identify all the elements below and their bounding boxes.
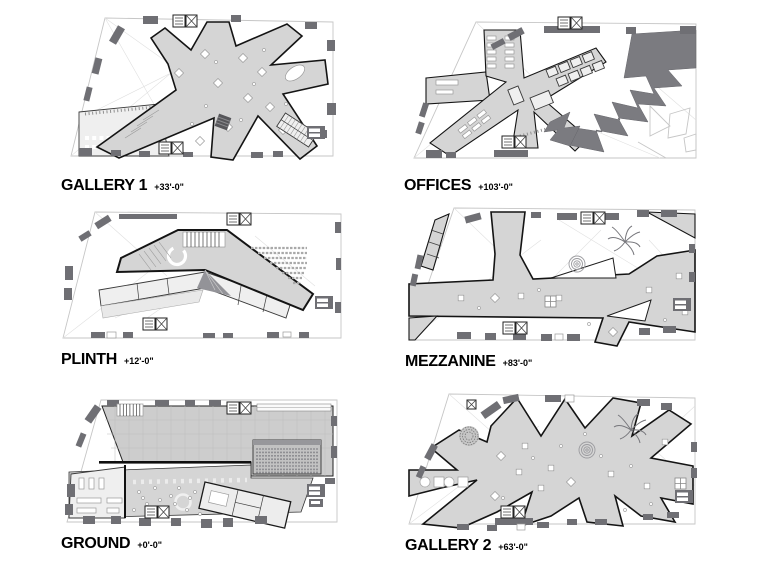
service-core-icon [673, 298, 691, 311]
elevator-core-icon [467, 400, 476, 409]
dark-building-mass [544, 30, 696, 152]
elevator-core-icon [503, 322, 527, 334]
spiral-stair-icon [569, 256, 585, 272]
auditorium-seating [253, 440, 321, 474]
service-core-icon [307, 126, 325, 139]
floor-name: GROUND [61, 535, 130, 553]
offices-floor-plan [398, 10, 703, 172]
floor-elevation: +83'-0" [503, 358, 533, 368]
panel-offices: OFFICES +103'-0" [398, 10, 703, 195]
floor-elevation: +103'-0" [478, 182, 513, 192]
palm-tree-icon [608, 226, 640, 255]
service-core-icon [675, 490, 693, 503]
floor-elevation: +0'-0" [137, 540, 162, 550]
gallery-2-floor-plan [399, 386, 701, 532]
caption-mezzanine: MEZZANINE +83'-0" [399, 353, 701, 371]
floor-name: MEZZANINE [405, 353, 496, 371]
elevator-core-icon [143, 318, 167, 330]
gallery-1-floor-plan [55, 10, 337, 172]
caption-plinth: PLINTH +12'-0" [55, 351, 347, 369]
floor-elevation: +12'-0" [124, 356, 154, 366]
elevator-core-icon [145, 506, 169, 518]
elevator-core-icon [558, 17, 582, 29]
panel-gallery-1: GALLERY 1 +33'-0" [55, 10, 337, 195]
floor-plate [409, 398, 693, 528]
caption-gallery-1: GALLERY 1 +33'-0" [55, 177, 337, 195]
mezzanine-floor-plan [399, 200, 701, 348]
panel-mezzanine: MEZZANINE +83'-0" [399, 200, 701, 371]
service-core-icon [315, 296, 333, 309]
elevator-core-icon [159, 142, 183, 154]
floor-name: GALLERY 2 [405, 537, 491, 555]
floor-elevation: +33'-0" [154, 182, 184, 192]
tree-icon [459, 426, 479, 446]
floor-plate [97, 22, 328, 160]
elevator-core-icon [227, 402, 251, 414]
elevator-core-icon [502, 136, 526, 148]
floor-plan-sheet: { "sheet": { "description": "Six stacked… [0, 0, 780, 585]
ground-floor-plan [55, 392, 343, 530]
elevator-core-icon [581, 212, 605, 224]
panel-ground: GROUND +0'-0" [55, 392, 343, 553]
caption-ground: GROUND +0'-0" [55, 535, 343, 553]
stair-hatch [117, 404, 143, 416]
elevator-core-icon [173, 15, 197, 27]
floor-plate [409, 212, 695, 346]
panel-gallery-2: GALLERY 2 +63'-0" [399, 386, 701, 555]
caption-offices: OFFICES +103'-0" [398, 177, 703, 195]
elevator-core-icon [227, 213, 251, 225]
floor-name: PLINTH [61, 351, 117, 369]
floor-elevation: +63'-0" [498, 542, 528, 552]
panel-plinth: PLINTH +12'-0" [55, 206, 347, 369]
floor-name: GALLERY 1 [61, 177, 147, 195]
gallery-wall [99, 461, 251, 464]
elevator-core-icon [501, 506, 525, 518]
plinth-floor-plan [55, 206, 347, 346]
floor-name: OFFICES [404, 177, 471, 195]
caption-gallery-2: GALLERY 2 +63'-0" [399, 537, 701, 555]
service-core-icon [307, 484, 325, 497]
